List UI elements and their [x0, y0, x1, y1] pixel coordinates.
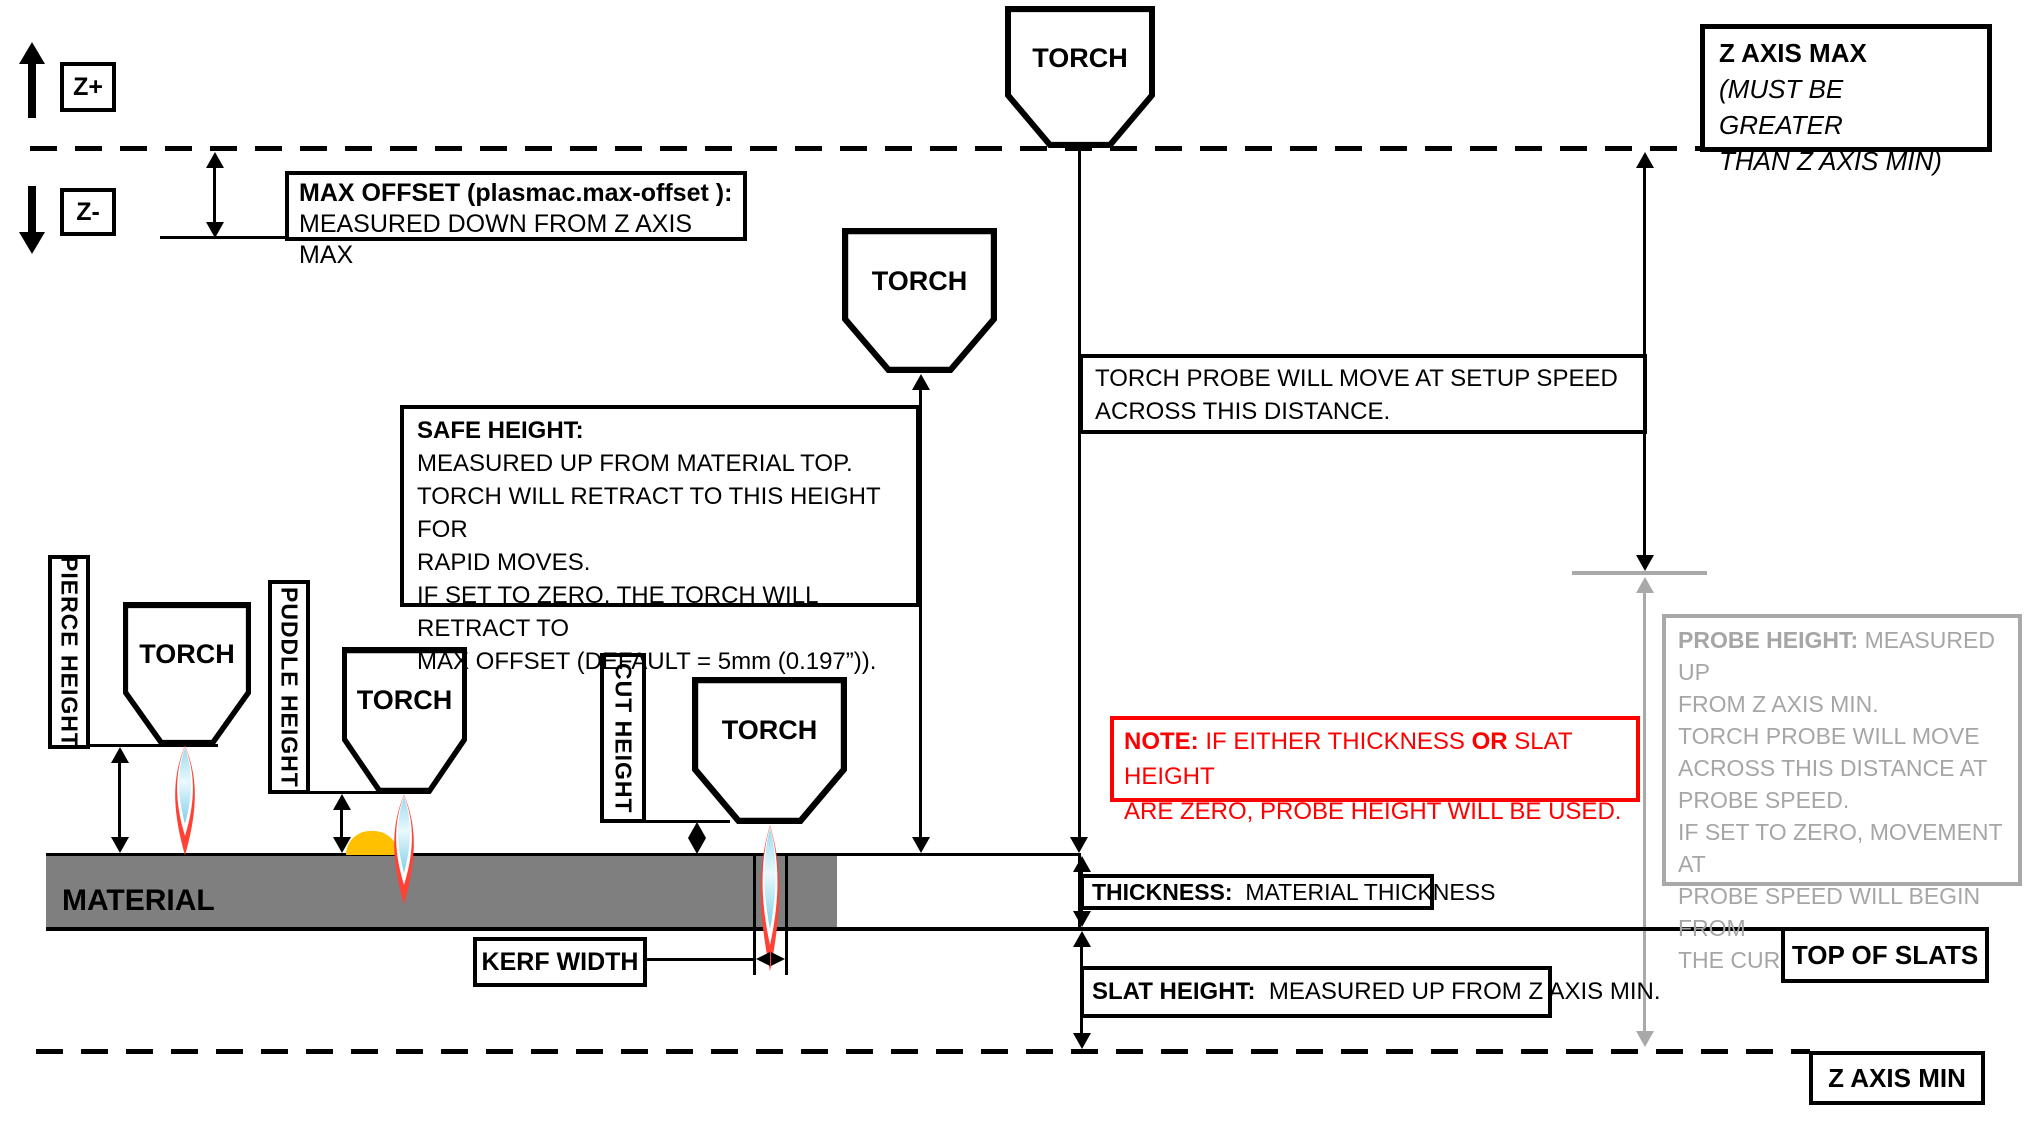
z-axis-max-box: Z AXIS MAX (MUST BE GREATER THAN Z AXIS … — [1700, 24, 1992, 152]
z-minus-arrow-shaft — [28, 186, 36, 234]
probe-travel-arrow-down-icon — [1070, 837, 1088, 853]
z-plus-label-box: Z+ — [60, 62, 116, 112]
torch-label: TORCH — [123, 639, 251, 670]
z-plus-label: Z+ — [73, 73, 103, 102]
pierce-arrow-shaft — [118, 761, 121, 839]
torch-probing: TORCH — [842, 228, 997, 373]
puddle-arrow-shaft — [340, 806, 343, 839]
torch-label: TORCH — [342, 685, 467, 716]
slat-height-title: SLAT HEIGHT: — [1092, 978, 1256, 1005]
z-axis-min-box: Z AXIS MIN — [1809, 1051, 1985, 1105]
z-axis-min-label: Z AXIS MIN — [1828, 1063, 1966, 1094]
probe-height-line: FROM Z AXIS MIN. — [1678, 688, 2006, 720]
material-bottom-slats-line — [46, 927, 1782, 931]
probe-height-line: IF SET TO ZERO, MOVEMENT AT — [1678, 816, 2006, 880]
z-minus-label: Z- — [76, 198, 100, 227]
pierce-arrow-down-icon — [111, 837, 129, 853]
cut-arrow-down-icon — [688, 838, 706, 854]
top-of-slats-box: TOP OF SLATS — [1781, 927, 1989, 983]
slat-height-desc: MEASURED UP FROM Z AXIS MIN. — [1256, 978, 1661, 1005]
note-text-1: IF EITHER THICKNESS — [1199, 728, 1472, 755]
cut-height-label-box: CUT HEIGHT — [600, 653, 646, 823]
max-offset-arrow-shaft — [213, 164, 216, 224]
thickness-desc: MATERIAL THICKNESS — [1233, 879, 1496, 905]
slat-arrow-down-icon — [1073, 1033, 1091, 1049]
probe-height-arrow-shaft — [1643, 591, 1646, 1031]
note-box: NOTE: IF EITHER THICKNESS OR SLAT HEIGHT… — [1110, 716, 1640, 802]
safe-height-line: IF SET TO ZERO, THE TORCH WILL RETRACT T… — [417, 579, 903, 645]
safe-height-box: SAFE HEIGHT: MEASURED UP FROM MATERIAL T… — [400, 405, 920, 607]
z-axis-max-title: Z AXIS MAX — [1719, 35, 1973, 71]
slat-height-box: SLAT HEIGHT: MEASURED UP FROM Z AXIS MIN… — [1080, 966, 1552, 1018]
torch-probe-box: TORCH PROBE WILL MOVE AT SETUP SPEED ACR… — [1079, 354, 1647, 434]
probe-height-box: PROBE HEIGHT: MEASURED UP FROM Z AXIS MI… — [1662, 614, 2022, 886]
plasmac-heights-diagram: Z+ Z- MAX OFFSET (plasmac.max-offset ): … — [0, 0, 2038, 1145]
safe-height-arrow-down-icon — [912, 837, 930, 853]
z-plus-arrow-icon — [19, 42, 45, 64]
note-prefix: NOTE: — [1124, 728, 1199, 755]
pierce-height-label-box: PIERCE HEIGHT — [48, 555, 90, 749]
z-minus-label-box: Z- — [60, 188, 116, 236]
probe-height-tick-line — [1572, 571, 1707, 575]
top-of-slats-label: TOP OF SLATS — [1792, 940, 1978, 971]
cut-height-label: CUT HEIGHT — [610, 663, 637, 814]
torch-at-z-max: TORCH — [1005, 6, 1155, 148]
kerf-arrow-left-icon — [756, 952, 770, 966]
z-axis-max-sub1: (MUST BE GREATER — [1719, 71, 1973, 143]
torch-probe-line2: ACROSS THIS DISTANCE. — [1095, 395, 1631, 428]
thickness-box: THICKNESS: MATERIAL THICKNESS — [1080, 874, 1434, 910]
probe-height-line: TORCH PROBE WILL MOVE — [1678, 720, 2006, 752]
probe-height-title: PROBE HEIGHT: — [1678, 627, 1858, 653]
kerf-width-label: KERF WIDTH — [482, 948, 639, 977]
torch-cut: TORCH — [692, 677, 847, 824]
max-offset-title: MAX OFFSET (plasmac.max-offset ): — [299, 178, 733, 209]
puddle-height-label-box: PUDDLE HEIGHT — [268, 580, 310, 794]
cut-arrow-up-icon — [688, 822, 706, 838]
z-minus-arrow-icon — [19, 232, 45, 254]
thickness-arrow-down-icon — [1073, 911, 1091, 927]
kerf-width-line — [647, 958, 753, 961]
safe-height-line: MEASURED UP FROM MATERIAL TOP. — [417, 447, 903, 480]
probe-height-arrow-down-icon — [1636, 1031, 1654, 1047]
puddle-height-label: PUDDLE HEIGHT — [276, 587, 303, 788]
torch-label: TORCH — [842, 266, 997, 297]
torch-label: TORCH — [1005, 43, 1155, 74]
torch-pierce: TORCH — [123, 602, 251, 746]
z-plus-arrow-shaft — [28, 62, 36, 118]
torch-probe-line1: TORCH PROBE WILL MOVE AT SETUP SPEED — [1095, 362, 1631, 395]
probe-height-line: PROBE SPEED. — [1678, 784, 2006, 816]
z-travel-arrow-down-icon — [1636, 555, 1654, 571]
max-offset-desc: MEASURED DOWN FROM Z AXIS MAX — [299, 209, 733, 271]
z-axis-max-dashed-line — [30, 146, 1702, 151]
pierce-height-label: PIERCE HEIGHT — [56, 556, 83, 748]
probe-travel-line — [1078, 146, 1081, 837]
pierce-flame-icon — [168, 744, 202, 857]
torch-label: TORCH — [692, 715, 847, 746]
max-offset-box: MAX OFFSET (plasmac.max-offset ): MEASUR… — [285, 171, 747, 241]
cut-flame-icon — [754, 823, 786, 973]
note-or: OR — [1472, 728, 1508, 755]
safe-height-line: TORCH WILL RETRACT TO THIS HEIGHT FOR — [417, 480, 903, 546]
thickness-title: THICKNESS: — [1092, 879, 1233, 905]
material-label: MATERIAL — [62, 884, 215, 918]
kerf-arrow-right-icon — [771, 952, 785, 966]
z-axis-min-dashed-line — [36, 1049, 1810, 1054]
note-text-3: ARE ZERO, PROBE HEIGHT WILL BE USED. — [1124, 794, 1626, 829]
safe-height-title: SAFE HEIGHT: — [417, 414, 903, 447]
probe-height-line: ACROSS THIS DISTANCE AT — [1678, 752, 2006, 784]
kerf-width-box: KERF WIDTH — [473, 937, 647, 987]
puddle-flame-icon — [387, 793, 421, 906]
safe-height-line: MAX OFFSET (DEFAULT = 5mm (0.197”)). — [417, 645, 903, 678]
safe-height-line: RAPID MOVES. — [417, 546, 903, 579]
z-axis-max-sub2: THAN Z AXIS MIN) — [1719, 143, 1973, 179]
